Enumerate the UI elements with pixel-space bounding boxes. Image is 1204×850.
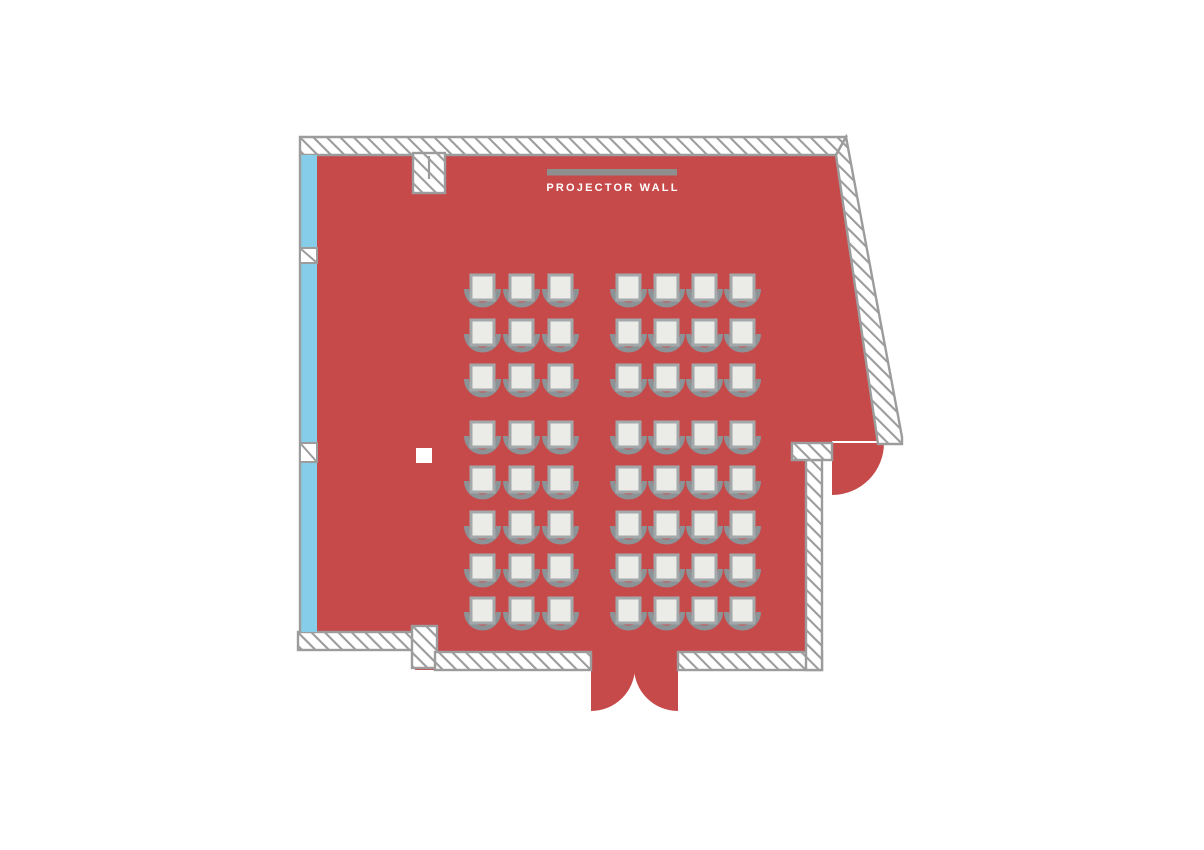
chair-seat [510, 422, 533, 447]
chair [506, 512, 538, 542]
chair-seat [471, 598, 494, 623]
chair [651, 512, 683, 542]
chair-seat [510, 275, 533, 300]
chair [545, 275, 577, 305]
chair-seat [655, 422, 678, 447]
interior-column [416, 448, 432, 463]
chair [689, 467, 721, 497]
chair [506, 555, 538, 585]
chair [689, 365, 721, 395]
chair-seat [693, 365, 716, 390]
right-door-jamb-stub [792, 443, 832, 460]
chair-seat [549, 365, 572, 390]
chair [467, 365, 499, 395]
chair [467, 320, 499, 350]
chair-seat [471, 275, 494, 300]
chair-seat [549, 422, 572, 447]
chair-seat [731, 422, 754, 447]
chair-seat [731, 320, 754, 345]
chair-seat [731, 512, 754, 537]
chair [545, 320, 577, 350]
chair [506, 275, 538, 305]
bottom-door-left-leaf [591, 667, 635, 711]
chair-seat [510, 512, 533, 537]
chair-seat [693, 555, 716, 580]
floorplan-canvas: PROJECTOR WALL [0, 0, 1204, 850]
chair-seat [617, 512, 640, 537]
chair-seat [693, 320, 716, 345]
chair-seat [693, 275, 716, 300]
window-strip [301, 155, 317, 632]
top-wall [300, 137, 846, 155]
chair [613, 365, 645, 395]
chair-seat [693, 422, 716, 447]
chair [651, 467, 683, 497]
projector-screen-bar [547, 169, 677, 176]
chair [689, 275, 721, 305]
chair-seat [731, 555, 754, 580]
chair-seat [617, 555, 640, 580]
chair [467, 422, 499, 452]
window-mullion-lower [300, 443, 317, 462]
chair-seat [655, 365, 678, 390]
chair [727, 365, 759, 395]
chair-seat [510, 598, 533, 623]
chair [613, 275, 645, 305]
chair-seat [549, 512, 572, 537]
chair [506, 467, 538, 497]
chair [651, 275, 683, 305]
chair [545, 365, 577, 395]
chair [467, 275, 499, 305]
chair-seat [617, 422, 640, 447]
projector-wall-label: PROJECTOR WALL [546, 182, 679, 194]
chair [651, 598, 683, 628]
chair [613, 598, 645, 628]
bottom-door-right-leaf [634, 667, 678, 711]
chair [467, 512, 499, 542]
chair-seat [471, 512, 494, 537]
bottom-left-wall [298, 632, 415, 650]
right-door-leaf [832, 443, 884, 495]
chair [613, 512, 645, 542]
chair-seat [510, 365, 533, 390]
chair [727, 422, 759, 452]
chair [727, 275, 759, 305]
chair [727, 467, 759, 497]
chair [467, 598, 499, 628]
chair [467, 555, 499, 585]
chair-seat [471, 365, 494, 390]
chair-seat [693, 512, 716, 537]
chair-seat [731, 275, 754, 300]
chair [727, 512, 759, 542]
chair [727, 555, 759, 585]
chair-seat [655, 555, 678, 580]
chair [506, 598, 538, 628]
chair [689, 512, 721, 542]
chair [545, 422, 577, 452]
chair-seat [731, 365, 754, 390]
chair-seat [617, 275, 640, 300]
chair-seat [655, 598, 678, 623]
chair-seat [510, 555, 533, 580]
chair-seat [655, 467, 678, 492]
bottom-wall-right-of-door [678, 652, 822, 670]
chair [467, 467, 499, 497]
chair [545, 598, 577, 628]
chair [689, 320, 721, 350]
chair-seat [617, 467, 640, 492]
chair-seat [471, 555, 494, 580]
chair-seat [693, 598, 716, 623]
chair [651, 422, 683, 452]
chair [651, 320, 683, 350]
chair-seat [617, 598, 640, 623]
chair-seat [471, 320, 494, 345]
chair [689, 598, 721, 628]
chair-seat [617, 320, 640, 345]
chair [613, 467, 645, 497]
chair [506, 422, 538, 452]
chair-seat [655, 512, 678, 537]
chair [689, 422, 721, 452]
floorplan-svg: PROJECTOR WALL [0, 0, 1204, 850]
bottom-step-wall [412, 626, 437, 668]
chair-seat [549, 598, 572, 623]
chair [545, 512, 577, 542]
chair [613, 422, 645, 452]
chair-seat [471, 422, 494, 447]
chair-seat [655, 320, 678, 345]
chair [613, 320, 645, 350]
chair-seat [549, 275, 572, 300]
chair-seat [510, 467, 533, 492]
chair [545, 555, 577, 585]
right-lower-wall [806, 460, 822, 670]
window-mullion-upper [300, 248, 317, 263]
chair [506, 365, 538, 395]
chair-seat [731, 467, 754, 492]
chair-seat [510, 320, 533, 345]
chair [689, 555, 721, 585]
chair-seat [731, 598, 754, 623]
chair-seat [549, 555, 572, 580]
chair [651, 365, 683, 395]
chair-seat [655, 275, 678, 300]
chair [727, 320, 759, 350]
chair-seat [549, 320, 572, 345]
chair-seat [617, 365, 640, 390]
chair [651, 555, 683, 585]
chair [545, 467, 577, 497]
chair [506, 320, 538, 350]
chair-seat [549, 467, 572, 492]
chair-seat [693, 467, 716, 492]
chair [613, 555, 645, 585]
chair-seat [471, 467, 494, 492]
bottom-wall-left-of-door [435, 652, 591, 670]
chair [727, 598, 759, 628]
